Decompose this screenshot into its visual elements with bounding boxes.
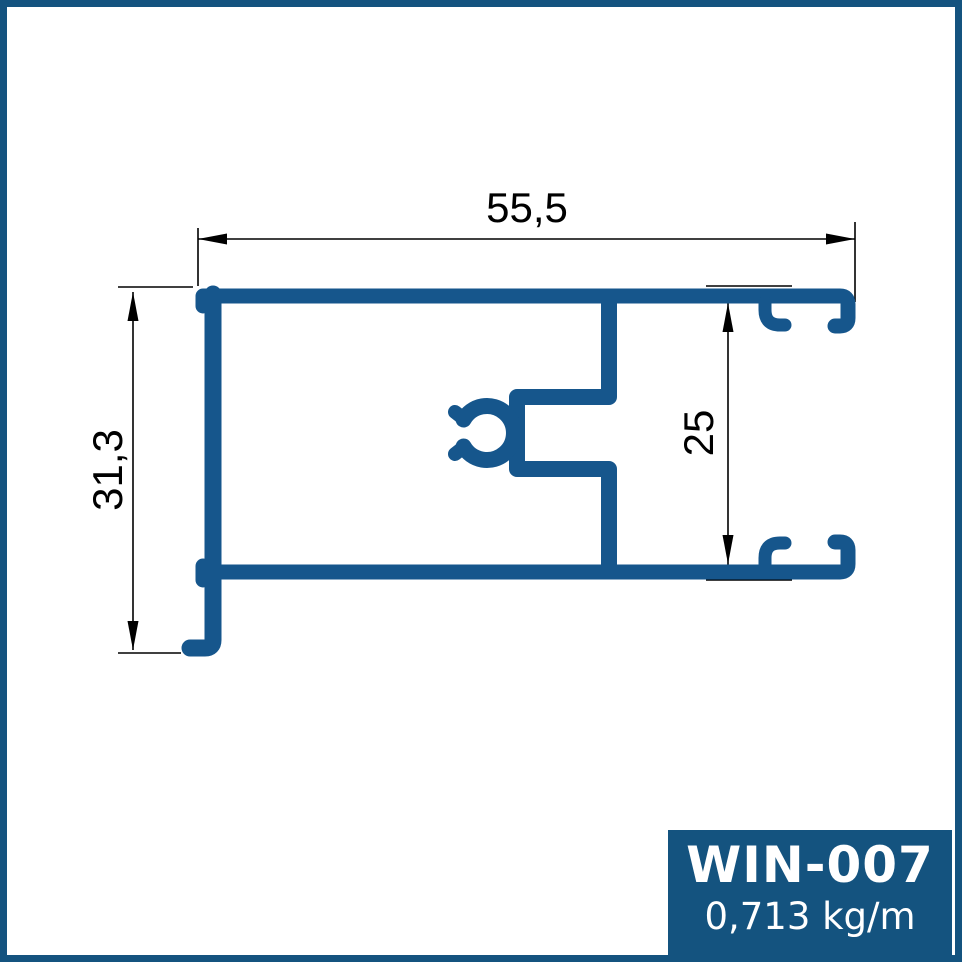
- product-code: WIN-007: [686, 836, 934, 894]
- arrowhead-up-inner-dim: [723, 303, 734, 332]
- top-member: [203, 296, 848, 326]
- screw-port-top-horn: [455, 412, 464, 419]
- product-weight: 0,713 kg/m: [704, 894, 915, 940]
- screw-port-bottom-horn: [455, 447, 464, 454]
- dimension-lines-layer: [118, 222, 855, 653]
- arrowhead-down-inner-dim: [723, 535, 734, 564]
- middle-member: [216, 542, 848, 572]
- arrowhead-right: [826, 234, 855, 245]
- dimension-value-inner-height: 25: [677, 373, 721, 493]
- dimension-value-width: 55,5: [422, 186, 632, 230]
- bottom-gasket-prong: [765, 543, 785, 566]
- profile-cross-section: [190, 294, 848, 648]
- screw-port: [464, 406, 514, 460]
- arrowhead-up-left-dim: [128, 292, 139, 321]
- arrowhead-left: [198, 234, 227, 245]
- product-label-box: WIN-007 0,713 kg/m: [668, 830, 952, 962]
- top-gasket-prong: [765, 302, 785, 325]
- arrowhead-down-left-dim: [128, 621, 139, 650]
- profile-technical-drawing: [0, 0, 962, 962]
- central-divider: [517, 300, 609, 568]
- left-wall: [190, 294, 213, 648]
- dimension-value-height: 31,3: [86, 390, 130, 550]
